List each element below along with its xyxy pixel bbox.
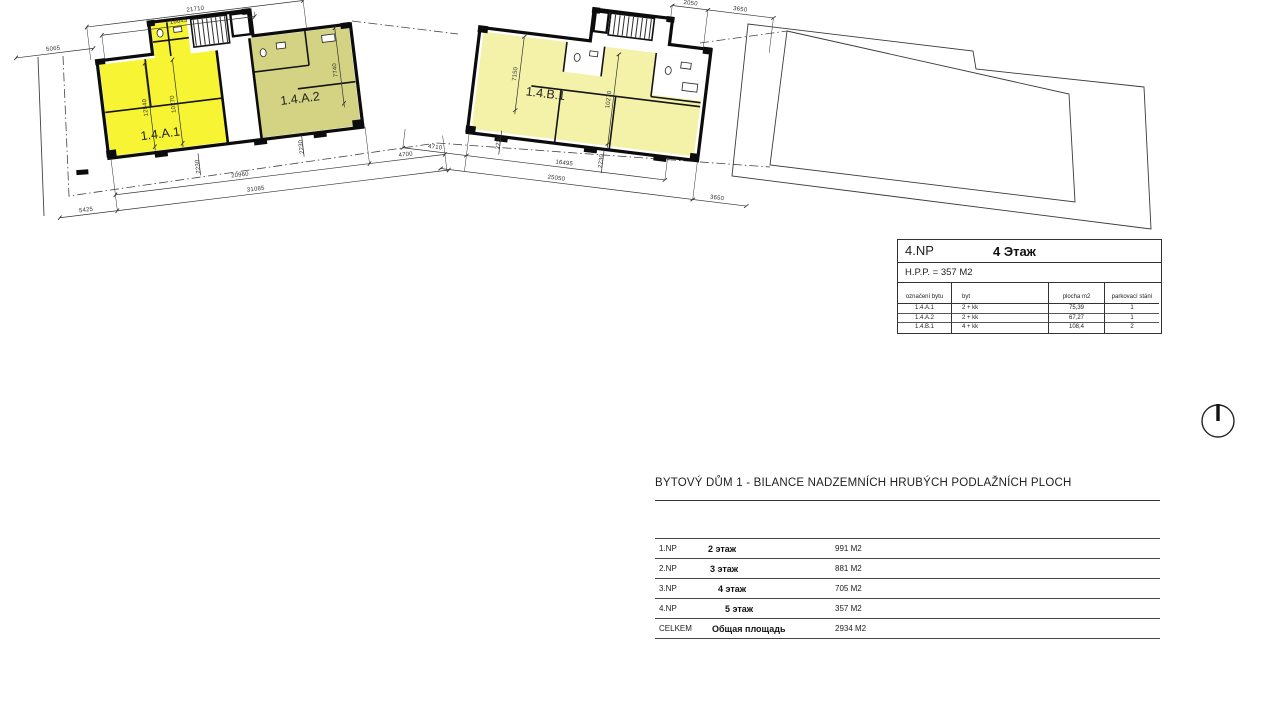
dimension-lines <box>11 0 451 223</box>
dimension-label: 3650 <box>710 195 725 203</box>
dimension-label: 21710 <box>186 6 205 14</box>
floor-code: 4.NP <box>905 243 934 258</box>
apartment-type: 4 + kk <box>951 323 1048 333</box>
summary-row: 4.NP 5 этаж 357 M2 <box>655 598 1160 618</box>
sink-icon <box>589 51 598 57</box>
drawing-sheet: 1.4.A.1 1.4.A.2 217101664550651254010270… <box>0 0 1280 720</box>
apartment-type: 2 + kk <box>951 304 1048 314</box>
apartment-parking: 2 <box>1104 323 1159 333</box>
parcel-left-line <box>38 57 44 216</box>
bathtub-icon <box>682 82 698 92</box>
summary-table: 1.NP 2 этаж 991 M2 2.NP 3 этаж 881 M2 3.… <box>655 538 1160 639</box>
sink-icon <box>276 42 286 49</box>
dimension-label: 2230 <box>495 135 503 150</box>
elevator-shaft <box>593 11 608 32</box>
dimension-label: 3650 <box>733 6 748 14</box>
right-wing-plan: 1.4.B.1 20503650715010270223022304710164… <box>399 0 777 209</box>
area-balance-summary: BYTOVÝ DŮM 1 - BILANCE NADZEMNÍCH HRUBÝC… <box>655 477 1160 639</box>
summary-row: 3.NP 4 этаж 705 M2 <box>655 578 1160 598</box>
dimension-label: 2050 <box>683 0 698 8</box>
total-code: CELKEM <box>655 624 708 633</box>
apartment-type: 2 + kk <box>951 314 1048 324</box>
title-block: 4.NP 4 Этаж H.P.P. = 357 M2 označení byt… <box>897 239 1162 334</box>
sink-icon <box>681 62 692 69</box>
floor-code: 3.NP <box>655 584 708 593</box>
apartment-area: 108,4 <box>1048 323 1104 333</box>
apartment-area: 67,27 <box>1048 314 1104 324</box>
bathtub-icon <box>322 34 336 43</box>
floor-area: 991 M2 <box>835 544 1160 553</box>
column-header: plocha m2 <box>1048 283 1104 304</box>
toilet-icon <box>665 66 672 75</box>
apartment-id: 1.4.A.2 <box>898 314 951 324</box>
summary-row: 1.NP 2 этаж 991 M2 <box>655 538 1160 558</box>
dimension-label: 4700 <box>398 151 413 159</box>
dimension-label: 2230 <box>298 139 306 154</box>
apartment-table: označení bytu byt plocha m2 parkovací st… <box>898 283 1161 333</box>
floor-name-ru: 5 этаж <box>708 604 835 614</box>
dimension-label: 5065 <box>46 45 61 53</box>
apartment-id: 1.4.A.1 <box>898 304 951 314</box>
bath-cell-white-2 <box>651 53 706 101</box>
floor-area: 705 M2 <box>835 584 1160 593</box>
toilet-icon <box>157 29 164 38</box>
column-header: označení bytu <box>898 283 951 304</box>
bath-cell-white <box>563 42 604 76</box>
floor-name-ru: 4 этаж <box>708 584 835 594</box>
floor-name-ru: 3 этаж <box>708 564 835 574</box>
floor-code: 1.NP <box>655 544 708 553</box>
apartment-parking: 1 <box>1104 304 1159 314</box>
apartment-id: 1.4.B.1 <box>898 323 951 333</box>
toilet-icon <box>260 48 267 57</box>
floor-area: 881 M2 <box>835 564 1160 573</box>
floor-name: 4 Этаж <box>993 244 1036 259</box>
floor-name-ru: 2 этаж <box>708 544 835 554</box>
summary-row-total: CELKEM Общая площадь 2934 M2 <box>655 618 1160 638</box>
dimension-label: 25050 <box>547 175 566 183</box>
toilet-icon <box>574 53 581 62</box>
north-indicator <box>1202 404 1234 437</box>
dimension-label: 31085 <box>247 186 266 194</box>
hpp-total: H.P.P. = 357 M2 <box>898 263 1161 283</box>
dimension-label: 4710 <box>428 144 443 152</box>
column-header: parkovací stání <box>1104 283 1159 304</box>
sink-icon <box>173 27 182 33</box>
floor-code: 4.NP <box>655 604 708 613</box>
dimension-label: 2230 <box>598 153 606 168</box>
total-name-ru: Общая площадь <box>708 624 835 634</box>
dimension-label: 20960 <box>231 171 250 179</box>
floor-code: 2.NP <box>655 564 708 573</box>
dimension-label: 2230 <box>195 159 203 174</box>
column-header: byt <box>951 283 1048 304</box>
floor-area: 357 M2 <box>835 604 1160 613</box>
dimension-ticks <box>11 0 451 223</box>
site-outline-inner <box>770 31 1075 202</box>
apartment-area: 75,39 <box>1048 304 1104 314</box>
site-outline-outer <box>732 24 1151 229</box>
summary-row: 2.NP 3 этаж 881 M2 <box>655 558 1160 578</box>
summary-title: BYTOVÝ DŮM 1 - BILANCE NADZEMNÍCH HRUBÝC… <box>655 477 1160 489</box>
title-block-header: 4.NP 4 Этаж <box>898 240 1161 263</box>
apartment-parking: 1 <box>1104 314 1159 324</box>
elevator-shaft <box>230 12 251 36</box>
apartment-1-4-A-2-area <box>249 26 360 137</box>
title-rule <box>655 500 1160 501</box>
total-area: 2934 M2 <box>835 624 1160 633</box>
dimension-label: 16495 <box>555 159 574 167</box>
dimension-label: 5425 <box>79 207 94 215</box>
left-wing-plan: 1.4.A.1 1.4.A.2 217101664550651254010270… <box>10 0 451 223</box>
